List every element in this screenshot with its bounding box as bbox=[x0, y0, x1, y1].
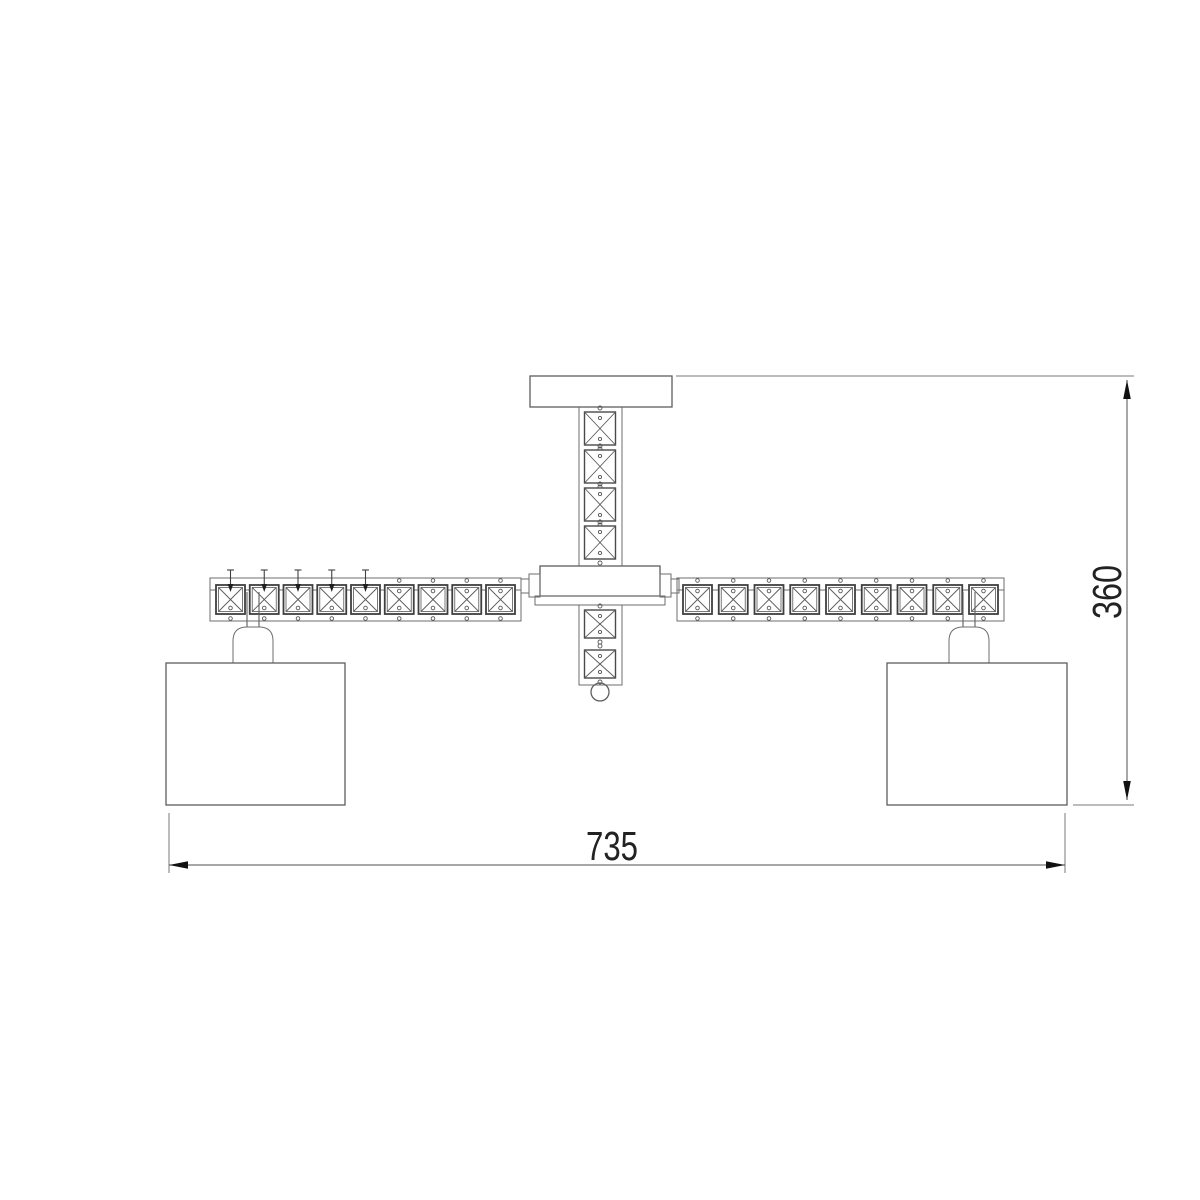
right-arm bbox=[677, 578, 1004, 621]
left-shade bbox=[166, 663, 345, 805]
crystal-square bbox=[969, 579, 998, 621]
hub-left-stub bbox=[521, 579, 529, 593]
hub-right-stub bbox=[671, 579, 679, 593]
arrow-down-icon bbox=[1123, 781, 1131, 800]
left-socket-cover bbox=[233, 627, 273, 663]
technical-drawing: 735 360 bbox=[0, 0, 1200, 1200]
left-arm bbox=[210, 570, 521, 621]
crystal-square bbox=[452, 579, 481, 621]
crystal-square bbox=[385, 579, 414, 621]
right-lamp bbox=[887, 592, 1067, 805]
crystal-square bbox=[862, 579, 891, 621]
hub-right-connector bbox=[660, 574, 671, 597]
crystal-square bbox=[898, 579, 927, 621]
crystal-square bbox=[755, 579, 784, 621]
arrow-left-icon bbox=[169, 861, 188, 869]
crystal-square bbox=[719, 579, 748, 621]
crystal-square bbox=[585, 644, 616, 684]
lower-crystal-column bbox=[585, 604, 616, 684]
arrow-right-icon bbox=[1046, 861, 1065, 869]
arrow-up-icon bbox=[1123, 380, 1131, 399]
ceiling-mount-plate bbox=[530, 376, 672, 407]
crystal-square bbox=[826, 579, 855, 621]
central-hub bbox=[521, 566, 679, 605]
height-dimension-label: 360 bbox=[1084, 565, 1130, 619]
crystal-square bbox=[419, 579, 448, 621]
crystal-square bbox=[683, 579, 712, 621]
hub-body bbox=[540, 566, 660, 596]
crystal-square bbox=[933, 579, 962, 621]
width-dimension-label: 735 bbox=[586, 823, 638, 869]
lower-stem bbox=[579, 604, 622, 701]
upper-crystal-column bbox=[585, 406, 616, 565]
ball-finial bbox=[591, 683, 609, 701]
crystal-square bbox=[585, 604, 616, 644]
width-dimension: 735 bbox=[169, 813, 1065, 873]
left-lamp bbox=[166, 592, 345, 805]
crystal-square bbox=[790, 579, 819, 621]
right-shade bbox=[887, 663, 1067, 805]
right-socket-cover bbox=[949, 627, 989, 663]
hub-left-connector bbox=[529, 574, 540, 597]
crystal-square bbox=[585, 520, 616, 565]
crystal-square bbox=[486, 579, 515, 621]
right-arm-crystal-row bbox=[683, 579, 998, 621]
drawing-canvas: 735 360 bbox=[0, 0, 1200, 1200]
